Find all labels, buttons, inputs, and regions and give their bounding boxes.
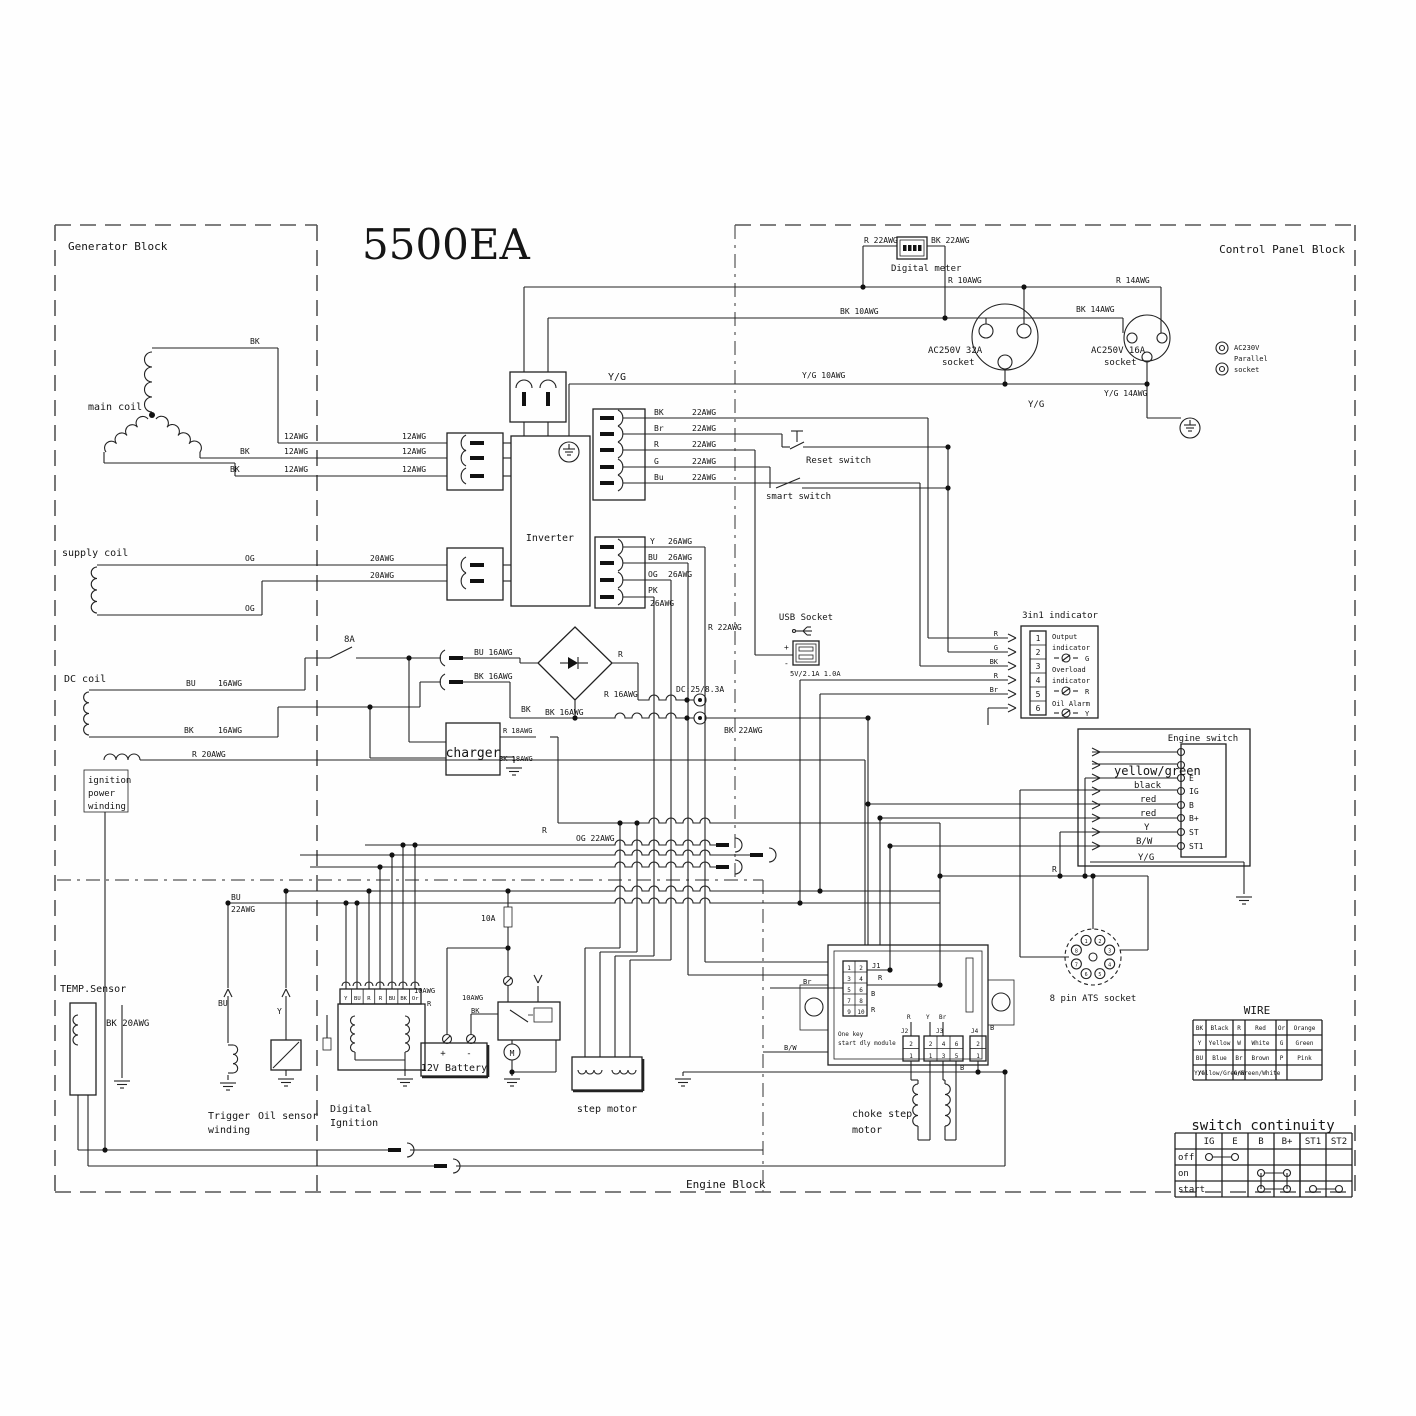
wire-table-cell-2-5: Pink <box>1297 1055 1312 1062</box>
lbl-j3: J3 <box>936 1028 944 1035</box>
lbl-j4: J4 <box>971 1028 979 1035</box>
digital-meter-label: Digital meter <box>891 264 962 274</box>
lbl-20awg-1: 20AWG <box>370 554 394 563</box>
indicator-row-0-1: indicator <box>1052 644 1090 652</box>
lbl-yg-inverter: Y/G <box>608 372 626 383</box>
ats-pin-5: 5 <box>1098 972 1101 978</box>
lbl-w4g: 22AWG <box>692 457 716 466</box>
ignition-terminal-2: R <box>367 996 371 1002</box>
indicator-row-1-0: Overload <box>1052 666 1086 674</box>
socket16-label2: socket <box>1104 358 1137 368</box>
lbl-16awg-dc2: 16AWG <box>218 726 242 735</box>
control-panel-block-title: Control Panel Block <box>1219 243 1345 256</box>
ats-pin-8: 8 <box>1075 949 1078 955</box>
j1-pin-8: 8 <box>859 998 863 1005</box>
lbl-r-bridge: R <box>618 650 623 659</box>
lbl-12awg-3b: 12AWG <box>402 465 426 474</box>
digital-ignition-label-1: Digital <box>330 1104 372 1115</box>
j2-pin-1: 1 <box>909 1053 913 1060</box>
lbl-y-conn: Y <box>926 1014 930 1021</box>
lbl-bw-module: B/W <box>784 1044 797 1052</box>
usb-title: USB Socket <box>779 613 833 623</box>
lbl-w1g: 22AWG <box>692 408 716 417</box>
j1-pin-6: 6 <box>859 987 863 994</box>
lbl-bk10awg: BK 10AWG <box>840 307 879 316</box>
engine-switch-wire-6: Y/G <box>1138 853 1154 863</box>
lbl-bk22awg-meter: BK 22AWG <box>931 236 970 245</box>
labels: 123456RGBKRBr3in1 indicatorOutputindicat… <box>60 236 1347 1195</box>
continuity-col-B: B <box>1258 1137 1263 1147</box>
lbl-w4c: G <box>654 457 659 466</box>
lbl-r-conn: R <box>907 1014 911 1021</box>
indicator-pin-5: 5 <box>1036 690 1041 699</box>
lbl-12awg-1b: 12AWG <box>402 432 426 441</box>
lbl-w2g: 22AWG <box>692 424 716 433</box>
indicator-wire-3: R <box>994 672 999 680</box>
ats-pin-4: 4 <box>1108 962 1111 968</box>
lbl-s2g: 26AWG <box>668 553 692 562</box>
lbl-bu22-2: 22AWG <box>231 905 255 914</box>
lbl-r14awg: R 14AWG <box>1116 276 1150 285</box>
lbl-10awg-batt: 10AWG <box>414 987 435 995</box>
engine-switch-terminal-B: B <box>1189 801 1194 810</box>
temp-sensor-label: TEMP.Sensor <box>60 984 126 995</box>
lbl-8a: 8A <box>344 635 355 645</box>
ignition-winding-2: power <box>88 789 116 799</box>
j1-pin-9: 9 <box>847 1009 851 1016</box>
wire-table-cell-0-2: R <box>1237 1025 1241 1032</box>
battery-plus: + <box>440 1049 446 1059</box>
indicator-pin-2: 2 <box>1036 648 1041 657</box>
wiring-diagram-page: { "blocks": { "generator": "Generator Bl… <box>0 0 1416 1416</box>
wire-table-cell-0-0: BK <box>1196 1025 1204 1032</box>
wire-table-cell-0-4: Or <box>1278 1025 1286 1032</box>
ats-pin-6: 6 <box>1085 972 1088 978</box>
engine-switch-terminal-ST: ST <box>1189 828 1199 837</box>
components <box>70 237 1343 1193</box>
wire-table-cell-1-2: W <box>1237 1040 1241 1047</box>
indicator-led-0: G <box>1085 655 1089 663</box>
lbl-s4g: 26AWG <box>650 599 674 608</box>
lbl-r22awg-usb: R 22AWG <box>708 623 742 632</box>
lbl-og-1: OG <box>245 554 255 563</box>
schematic-canvas: 123456RGBKRBr3in1 indicatorOutputindicat… <box>0 0 1416 1416</box>
continuity-row-start: start <box>1178 1185 1205 1195</box>
wire-table-cell-1-1: Yellow <box>1209 1040 1231 1047</box>
lbl-w1c: BK <box>654 408 664 417</box>
wire-table-cell-1-5: Green <box>1295 1040 1313 1047</box>
motor-m: M <box>510 1049 515 1058</box>
lbl-bu-trigger: BU <box>218 999 228 1008</box>
lbl-br-conn: Br <box>939 1014 947 1021</box>
lbl-yg14awg: Y/G 14AWG <box>1104 389 1148 398</box>
indicator-row-2-0: Oil Alarm <box>1052 700 1090 708</box>
wire-table-cell-2-1: Blue <box>1212 1055 1227 1062</box>
j1-pin-4: 4 <box>859 976 863 983</box>
wire-table-cell-0-1: Black <box>1210 1025 1228 1032</box>
ats-pin-3: 3 <box>1108 949 1111 955</box>
indicator-row-1-1: indicator <box>1052 677 1090 685</box>
indicator-wire-2: BK <box>990 658 999 666</box>
battery-label: 12V Battery <box>421 1063 487 1074</box>
ignition-terminal-3: R <box>379 996 383 1002</box>
lbl-bk-main-2: BK <box>240 447 250 456</box>
wire-table-cell-1-3: White <box>1251 1040 1269 1047</box>
lbl-bk18awg: BK 18AWG <box>499 755 533 763</box>
indicator-pin-6: 6 <box>1036 704 1041 713</box>
engine-switch-title: Engine switch <box>1168 734 1238 744</box>
lbl-s1g: 26AWG <box>668 537 692 546</box>
lbl-s1c: Y <box>650 537 655 546</box>
wire-table-cell-2-3: Brown <box>1251 1055 1269 1062</box>
j1-pin-5: 5 <box>847 987 851 994</box>
lbl-j2: J2 <box>901 1028 909 1035</box>
lbl-bk-dc: BK <box>184 726 194 735</box>
indicator-pin-1: 1 <box>1036 634 1041 643</box>
lbl-bk-main-3: BK <box>230 465 240 474</box>
lbl-bu16awg: BU 16AWG <box>474 648 513 657</box>
lbl-12awg-2b: 12AWG <box>402 447 426 456</box>
wire-table-cell-0-3: Red <box>1255 1025 1266 1032</box>
engine-switch-terminal-B+: B+ <box>1189 814 1199 823</box>
lbl-j1: J1 <box>872 962 880 970</box>
engine-switch-terminal-ST1: ST1 <box>1189 842 1204 851</box>
engine-switch-wire-4: Y <box>1144 823 1150 833</box>
indicator-pin-3: 3 <box>1036 662 1041 671</box>
ignition-terminal-1: BU <box>354 996 361 1002</box>
lbl-20awg-2: 20AWG <box>370 571 394 580</box>
lbl-b-conn2: B <box>960 1064 964 1072</box>
indicator-pin-4: 4 <box>1036 676 1041 685</box>
lbl-og22awg: OG 22AWG <box>576 834 615 843</box>
generator-block-title: Generator Block <box>68 240 168 253</box>
engine-switch-wire-1: black <box>1134 781 1162 791</box>
trigger-label-1: Trigger <box>208 1111 250 1122</box>
engine-switch-terminal-IG: IG <box>1189 787 1199 796</box>
j3-pin-3: 3 <box>942 1053 946 1060</box>
reset-switch-label: Reset switch <box>806 456 871 466</box>
lbl-yg-socket: Y/G <box>1028 400 1044 410</box>
continuity-table-title: switch continuity <box>1191 1118 1334 1134</box>
ignition-terminal-0: Y <box>344 996 348 1002</box>
continuity-col-ST2: ST2 <box>1331 1137 1347 1147</box>
battery-minus: - <box>466 1049 471 1059</box>
indicator-wire-4: Br <box>990 686 998 694</box>
supply-coil-label: supply coil <box>62 548 128 559</box>
continuity-col-IG: IG <box>1204 1137 1215 1147</box>
onekey-label-2: start dly module <box>838 1040 896 1047</box>
lbl-w2c: Br <box>654 424 664 433</box>
wire-table-title: WIRE <box>1244 1004 1271 1017</box>
lbl-r-batt: R <box>427 1000 432 1008</box>
product-title: 5500EA <box>362 220 531 269</box>
j4-pin-1: 1 <box>976 1053 980 1060</box>
lbl-r-bundle: R <box>542 826 547 835</box>
ignition-winding-1: ignition <box>88 776 131 786</box>
continuity-col-B+: B+ <box>1282 1137 1293 1147</box>
indicator-led-2: Y <box>1085 710 1090 718</box>
ignition-winding-3: winding <box>88 802 126 812</box>
lbl-s2c: BU <box>648 553 658 562</box>
engine-block-title: Engine Block <box>686 1178 766 1191</box>
usb-plus: + <box>784 643 789 652</box>
lbl-bk-bridge: BK <box>521 705 531 714</box>
digital-ignition-label-2: Ignition <box>330 1118 378 1129</box>
lbl-r16awg: R 16AWG <box>604 690 638 699</box>
lbl-16awg-dc1: 16AWG <box>218 679 242 688</box>
lbl-bk-main-top: BK <box>250 337 260 346</box>
ats-label: 8 pin ATS socket <box>1050 994 1137 1004</box>
lbl-j1-r2: R <box>871 1006 876 1014</box>
j1-pin-2: 2 <box>859 965 863 972</box>
wire-table-cell-0-5: Orange <box>1294 1025 1316 1032</box>
continuity-row-off: off <box>1178 1153 1194 1163</box>
lbl-br-module: Br <box>803 978 811 986</box>
lbl-s4c: PK <box>648 586 658 595</box>
ignition-terminal-4: BU <box>389 996 396 1002</box>
indicator-wire-0: R <box>994 630 999 638</box>
wire-table-cell-1-0: Y <box>1198 1040 1202 1047</box>
wire-table-cell-3-3: Green/White <box>1241 1070 1281 1077</box>
j3-pin-4: 4 <box>942 1041 946 1048</box>
j1-pin-7: 7 <box>847 998 851 1005</box>
lbl-bk14awg: BK 14AWG <box>1076 305 1115 314</box>
usb-rating: 5V/2.1A 1.0A <box>790 670 841 678</box>
charger-label: charger <box>446 746 501 761</box>
choke-label-2: motor <box>852 1125 882 1136</box>
lbl-w3g: 22AWG <box>692 440 716 449</box>
j3-pin-2: 2 <box>929 1041 933 1048</box>
lbl-12awg-1a: 12AWG <box>284 432 308 441</box>
lbl-yg10awg: Y/G 10AWG <box>802 371 846 380</box>
lbl-w5c: Bu <box>654 473 664 482</box>
j1-pin-10: 10 <box>857 1009 865 1016</box>
j3-pin-6: 6 <box>955 1041 959 1048</box>
smart-switch-label: smart switch <box>766 492 831 502</box>
lbl-bk-relay: BK <box>471 1007 480 1015</box>
socket16-label1: AC250V 16A <box>1091 346 1146 356</box>
step-motor-label: step motor <box>577 1104 637 1115</box>
ats-pin-7: 7 <box>1075 962 1078 968</box>
dc-coil-label: DC coil <box>64 674 106 685</box>
indicator-wire-1: G <box>994 644 998 652</box>
continuity-row-on: on <box>1178 1169 1189 1179</box>
lbl-10awg-relay: 10AWG <box>462 994 483 1002</box>
engine-switch-wire-0: yellow/green <box>1114 764 1201 778</box>
j3-pin-5: 5 <box>955 1053 959 1060</box>
lbl-r10awg: R 10AWG <box>948 276 982 285</box>
lbl-bk16awg-conn: BK 16AWG <box>474 672 513 681</box>
j3-pin-1: 1 <box>929 1053 933 1060</box>
j2-pin-2: 2 <box>909 1041 913 1048</box>
lbl-dc-rating: DC:25/8.3A <box>676 685 724 694</box>
lbl-s3c: OG <box>648 570 658 579</box>
lbl-r18awg: R 18AWG <box>503 727 533 735</box>
engine-switch-wire-5: B/W <box>1136 837 1153 847</box>
wire-table-cell-2-2: Br <box>1235 1055 1243 1062</box>
lbl-j1-r1: R <box>878 974 883 982</box>
wire-table-cell-2-4: P <box>1280 1055 1284 1062</box>
lbl-b-conn1: B <box>990 1024 994 1032</box>
lbl-w5g: 22AWG <box>692 473 716 482</box>
lbl-r-ats: R <box>1052 865 1057 874</box>
lbl-j1-b: B <box>871 990 875 998</box>
lbl-r22awg-meter: R 22AWG <box>864 236 898 245</box>
trigger-label-2: winding <box>208 1125 250 1136</box>
j1-pin-1: 1 <box>847 965 851 972</box>
lbl-y-oil: Y <box>277 1007 282 1016</box>
onekey-label-1: One key <box>838 1031 864 1038</box>
indicator-led-1: R <box>1085 688 1090 696</box>
lbl-bk20awg: BK 20AWG <box>106 1019 149 1029</box>
parallel-label2: Parallel <box>1234 355 1268 363</box>
lbl-10a: 10A <box>481 914 496 923</box>
j4-pin-2: 2 <box>976 1041 980 1048</box>
indicator-title: 3in1 indicator <box>1022 611 1098 621</box>
wire-table-cell-2-0: BU <box>1196 1055 1204 1062</box>
ignition-terminal-5: BK <box>400 996 407 1002</box>
indicator-row-0-0: Output <box>1052 633 1077 641</box>
wiring <box>73 246 1352 1197</box>
engine-switch-wire-3: red <box>1140 809 1156 819</box>
continuity-col-E: E <box>1232 1137 1237 1147</box>
ats-pin-1: 1 <box>1085 939 1088 945</box>
lbl-bu22-1: BU <box>231 893 241 902</box>
usb-minus: - <box>784 659 789 668</box>
lbl-og-2: OG <box>245 604 255 613</box>
parallel-label1: AC230V <box>1234 344 1260 352</box>
choke-label-1: choke step <box>852 1109 912 1120</box>
ignition-terminal-6: Or <box>412 996 419 1002</box>
lbl-r20awg: R 20AWG <box>192 750 226 759</box>
lbl-bk16awg-2: BK 16AWG <box>545 708 584 717</box>
lbl-w3c: R <box>654 440 659 449</box>
lbl-12awg-2a: 12AWG <box>284 447 308 456</box>
parallel-label3: socket <box>1234 366 1259 374</box>
socket32-label1: AC250V 32A <box>928 346 983 356</box>
continuity-col-ST1: ST1 <box>1305 1137 1321 1147</box>
lbl-bu-dc: BU <box>186 679 196 688</box>
main-coil-label: main coil <box>88 402 142 413</box>
lbl-s3g: 26AWG <box>668 570 692 579</box>
j1-pin-3: 3 <box>847 976 851 983</box>
inverter-label: Inverter <box>526 533 574 544</box>
socket32-label2: socket <box>942 358 975 368</box>
lbl-bk22awg-dc: BK 22AWG <box>724 726 763 735</box>
lbl-12awg-3a: 12AWG <box>284 465 308 474</box>
ats-pin-2: 2 <box>1098 939 1101 945</box>
wire-table-cell-1-4: G <box>1280 1040 1284 1047</box>
engine-switch-wire-2: red <box>1140 795 1156 805</box>
oil-sensor-label: Oil sensor <box>258 1111 318 1122</box>
